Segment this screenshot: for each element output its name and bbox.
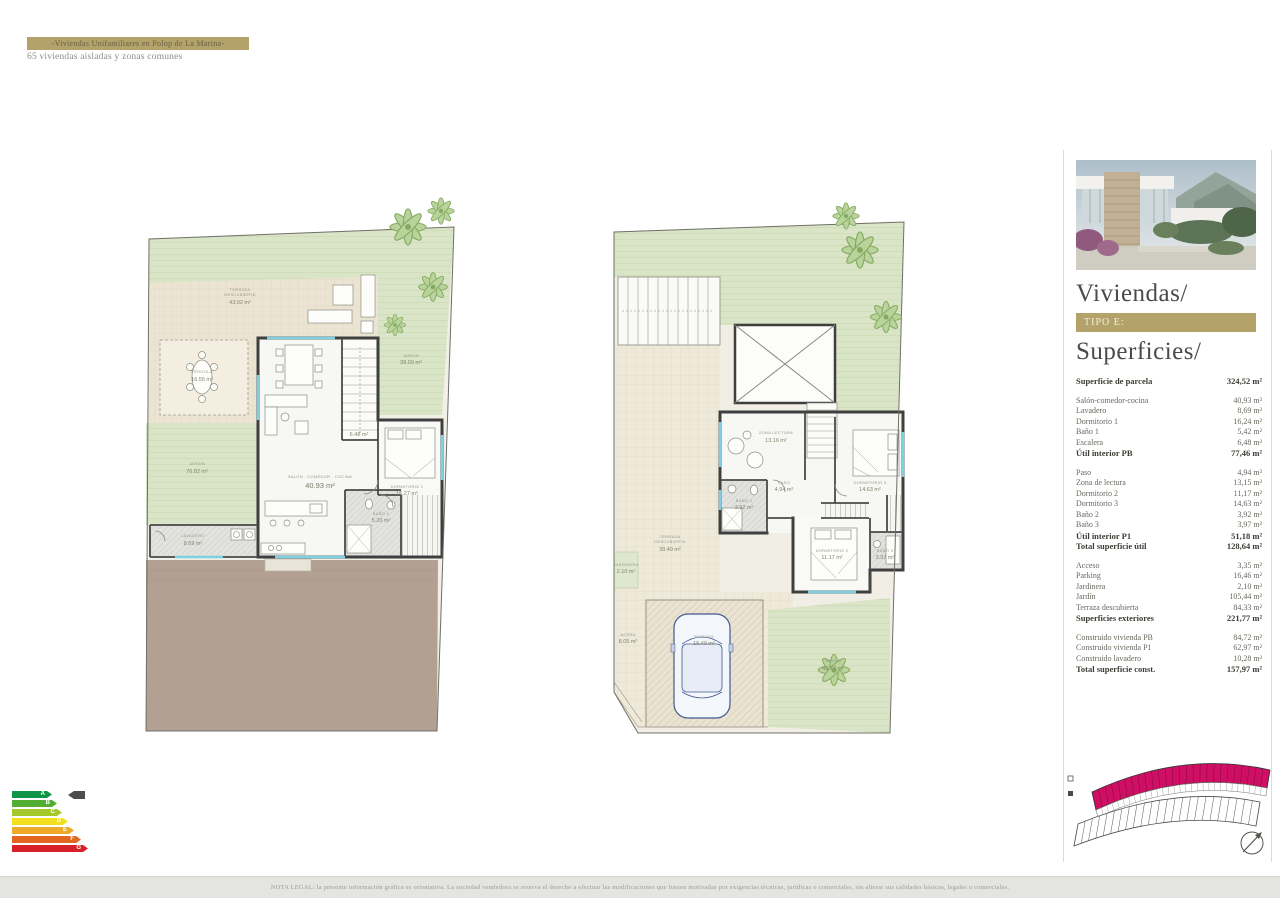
exterior-stairs-icon (618, 277, 720, 345)
svg-text:15.40 m²: 15.40 m² (693, 641, 715, 647)
palm-icon (384, 314, 406, 336)
surface-row: Acceso3,35 m² (1076, 561, 1262, 572)
surface-row: Zona de lectura13,15 m² (1076, 478, 1262, 489)
palm-icon (870, 301, 901, 332)
bed-icon (385, 428, 435, 478)
energy-bar: B (12, 800, 57, 807)
svg-text:13.16 m²: 13.16 m² (765, 438, 787, 444)
brochure-page: { "header": { "banner": "-Viviendas Unif… (0, 0, 1280, 905)
compass-icon (1241, 832, 1263, 854)
palm-icon (428, 198, 454, 224)
surface-row: Jardinera2,10 m² (1076, 582, 1262, 593)
energy-bar: D (12, 818, 68, 825)
surfaces-table: Superficie de parcela324,52 m² Salón-com… (1076, 376, 1262, 684)
svg-text:DORMITORIO 1: DORMITORIO 1 (391, 484, 424, 489)
palm-icon (833, 203, 859, 229)
svg-text:PARKING: PARKING (694, 634, 714, 639)
skylight-icon (735, 325, 835, 403)
surface-row: Superficie de parcela324,52 m² (1076, 376, 1262, 387)
surface-row: Construido lavadero10,28 m² (1076, 654, 1262, 665)
closet-area (887, 495, 903, 531)
svg-text:BAÑO 2: BAÑO 2 (736, 498, 753, 503)
svg-text:2.10 m²: 2.10 m² (617, 569, 636, 575)
entry-step (265, 559, 311, 571)
project-title-banner: -Viviendas Unifamiliares en Polop de La … (27, 37, 249, 50)
svg-text:ACERA: ACERA (620, 632, 635, 637)
type-badge: TIPO E: (1076, 313, 1256, 332)
driveway (146, 560, 438, 731)
svg-text:LAVADERO: LAVADERO (181, 533, 205, 538)
surface-row: Superficies exteriores221,77 m² (1076, 613, 1262, 624)
surface-row: Total superficie útil128,64 m² (1076, 541, 1262, 552)
surface-row: Útil interior P151,18 m² (1076, 531, 1262, 542)
svg-text:JARDINERA: JARDINERA (613, 562, 638, 567)
svg-text:DESCUBIERTA: DESCUBIERTA (224, 292, 255, 297)
surface-row: Dormitorio 116,24 m² (1076, 417, 1262, 428)
energy-bar: G (12, 845, 88, 852)
surface-row: Útil interior PB77,46 m² (1076, 448, 1262, 459)
palm-icon (390, 209, 426, 245)
svg-text:39.40 m²: 39.40 m² (659, 547, 681, 553)
surface-row: Jardín105,44 m² (1076, 592, 1262, 603)
closet-area (821, 503, 869, 518)
floor-plan-first: ZONA LECTURA 13.16 m² PASO 4.94 m² DORMI… (608, 192, 910, 734)
project-subtitle: 65 viviendas aisladas y zonas comunes (27, 52, 182, 62)
legal-text: NOTA LEGAL: la presente información gráf… (0, 877, 1280, 898)
energy-bar: A (12, 791, 52, 798)
site-plan (1062, 740, 1280, 865)
surface-group-parcela: Superficie de parcela324,52 m² (1076, 376, 1262, 387)
surface-row: Total superficie const.157,97 m² (1076, 664, 1262, 675)
surface-group-pb: Salón-comedor-cocina40,93 m²Lavadero8,69… (1076, 396, 1262, 459)
energy-bar: C (12, 809, 62, 816)
svg-text:DORMITORIO 3: DORMITORIO 3 (854, 480, 887, 485)
surface-row: Lavadero8,69 m² (1076, 406, 1262, 417)
svg-text:SALÓN - COMEDOR - COCINA: SALÓN - COMEDOR - COCINA (288, 474, 352, 479)
svg-text:76.82 m²: 76.82 m² (186, 469, 208, 475)
svg-text:8.05 m²: 8.05 m² (619, 639, 638, 645)
svg-text:16.55 m²: 16.55 m² (191, 377, 213, 383)
surface-row: Construido vivienda P162,97 m² (1076, 643, 1262, 654)
section-title-superficies: Superficies/ (1076, 338, 1201, 366)
svg-text:DESCUBIERTA: DESCUBIERTA (654, 539, 685, 544)
dining-table-icon (276, 345, 322, 388)
svg-text:40.93 m²: 40.93 m² (305, 481, 335, 490)
surface-row: Paso4,94 m² (1076, 468, 1262, 479)
surface-row: Dormitorio 211,17 m² (1076, 489, 1262, 500)
svg-text:JARDIN: JARDIN (189, 461, 205, 466)
svg-text:4.94 m²: 4.94 m² (775, 487, 794, 493)
surface-group-construido: Construido vivienda PB84,72 m²Construido… (1076, 633, 1262, 675)
stairs-icon (342, 340, 378, 438)
section-title-viviendas: Viviendas/ (1076, 280, 1188, 308)
svg-text:PÉRGOLA: PÉRGOLA (191, 369, 212, 374)
energy-rating-chart: A B C D E F G (12, 791, 142, 861)
svg-text:DORMITORIO 2: DORMITORIO 2 (816, 548, 849, 553)
surface-row: Dormitorio 314,63 m² (1076, 499, 1262, 510)
surface-row: Parking16,46 m² (1076, 571, 1262, 582)
palm-icon (419, 273, 448, 302)
svg-text:8.69 m²: 8.69 m² (184, 541, 203, 547)
svg-text:3.97 m²: 3.97 m² (876, 555, 895, 561)
car-icon (671, 614, 733, 718)
surface-row: Terraza descubierta84,33 m² (1076, 603, 1262, 614)
floor-plan-ground: TERRAZA DESCUBIERTA 43.02 m² PÉRGOLA 16.… (145, 195, 457, 732)
villa-photo (1076, 160, 1256, 270)
surface-row: Salón-comedor-cocina40,93 m² (1076, 396, 1262, 407)
bed-icon (811, 528, 857, 580)
svg-text:43.77 m²: 43.77 m² (822, 666, 844, 672)
svg-text:14.63 m²: 14.63 m² (859, 487, 881, 493)
legal-footer: NOTA LEGAL: la presente información gráf… (0, 876, 1280, 898)
svg-text:43.02 m²: 43.02 m² (229, 300, 251, 306)
surface-group-p1: Paso4,94 m²Zona de lectura13,15 m²Dormit… (1076, 468, 1262, 552)
surface-row: Escalera6,48 m² (1076, 438, 1262, 449)
surface-row: Baño 15,42 m² (1076, 427, 1262, 438)
wardrobe-area (401, 495, 442, 557)
svg-text:39.00 m²: 39.00 m² (400, 360, 422, 366)
svg-text:16.27 m²: 16.27 m² (396, 491, 418, 497)
svg-text:BAÑO 1: BAÑO 1 (373, 511, 390, 516)
svg-text:BAÑO 3: BAÑO 3 (877, 548, 894, 553)
palm-icon (842, 232, 878, 268)
svg-text:5.20 m²: 5.20 m² (372, 518, 391, 524)
svg-text:PASO: PASO (778, 480, 790, 485)
svg-text:ZONA LECTURA: ZONA LECTURA (759, 430, 793, 435)
svg-text:JARDIN: JARDIN (403, 353, 419, 358)
svg-text:JARDIN: JARDIN (825, 658, 841, 663)
surface-row: Construido vivienda PB84,72 m² (1076, 633, 1262, 644)
surface-row: Baño 33,97 m² (1076, 520, 1262, 531)
svg-text:6.48 m²: 6.48 m² (350, 432, 369, 438)
svg-text:3.92 m²: 3.92 m² (735, 505, 754, 511)
bed-icon (853, 430, 899, 476)
energy-bar: E (12, 827, 74, 834)
energy-bar: F (12, 836, 81, 843)
surface-row: Baño 23,92 m² (1076, 510, 1262, 521)
surface-group-exterior: Acceso3,35 m²Parking16,46 m²Jardinera2,1… (1076, 561, 1262, 624)
legend-swatch-type (1068, 791, 1073, 796)
svg-text:11.17 m²: 11.17 m² (821, 555, 842, 561)
legend-swatch-other (1068, 776, 1073, 781)
